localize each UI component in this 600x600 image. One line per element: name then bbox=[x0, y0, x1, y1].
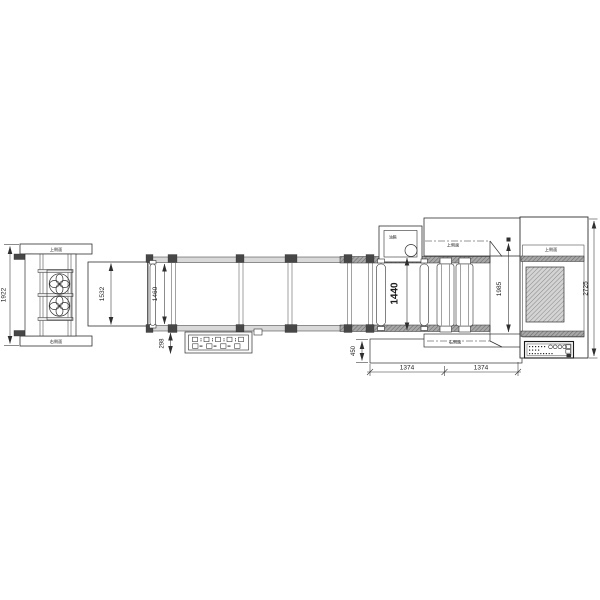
right-unit-label: 上侧面 bbox=[545, 246, 558, 253]
mid-control-panel bbox=[185, 332, 252, 353]
dimension-base: 450 bbox=[351, 345, 357, 356]
dimension-infeed: 1532 bbox=[99, 286, 106, 301]
dimension-belt: 1440 bbox=[390, 282, 401, 305]
thin-roller bbox=[377, 259, 429, 331]
hatch-panel bbox=[526, 267, 564, 322]
infeed-box: 1532 bbox=[88, 262, 148, 326]
mid-top-label: 上侧面 bbox=[447, 242, 460, 249]
left-unit-bottom-label: 右侧面 bbox=[50, 338, 63, 345]
left-unit-top-label: 上侧面 bbox=[50, 246, 63, 253]
drum-roller bbox=[437, 258, 473, 332]
svg-text:2725: 2725 bbox=[583, 281, 590, 296]
left-fan-unit: 上侧面 右侧面 bbox=[14, 244, 92, 346]
cad-viewport: 上侧面 bbox=[0, 0, 600, 600]
right-unit-top-rail bbox=[521, 256, 584, 262]
skirt-enclosure bbox=[424, 334, 522, 347]
engineering-drawing: 上侧面 bbox=[0, 0, 600, 600]
right-unit-bottom-rail bbox=[521, 331, 584, 337]
svg-text:1922: 1922 bbox=[1, 287, 8, 302]
right-control-panel bbox=[525, 342, 574, 359]
dimension-span2: 1374 bbox=[474, 365, 489, 372]
mid-bottom-label: 右侧面 bbox=[449, 339, 462, 346]
right-machine-unit: 上侧面 bbox=[520, 217, 588, 358]
dimension-panel: 298 bbox=[160, 338, 166, 349]
dimension-outfeed: 1985 bbox=[496, 281, 503, 296]
junction-box bbox=[254, 329, 262, 335]
dimension-conveyor: 1460 bbox=[152, 286, 159, 301]
roller-section: 1440 bbox=[377, 258, 474, 332]
hood-enclosure bbox=[424, 218, 522, 256]
rail-pads bbox=[146, 255, 374, 333]
oil-box: 油箱 bbox=[379, 226, 422, 262]
oil-box-label: 油箱 bbox=[389, 235, 397, 240]
dimension-span1: 1374 bbox=[400, 365, 415, 372]
frame-legs bbox=[172, 263, 373, 325]
